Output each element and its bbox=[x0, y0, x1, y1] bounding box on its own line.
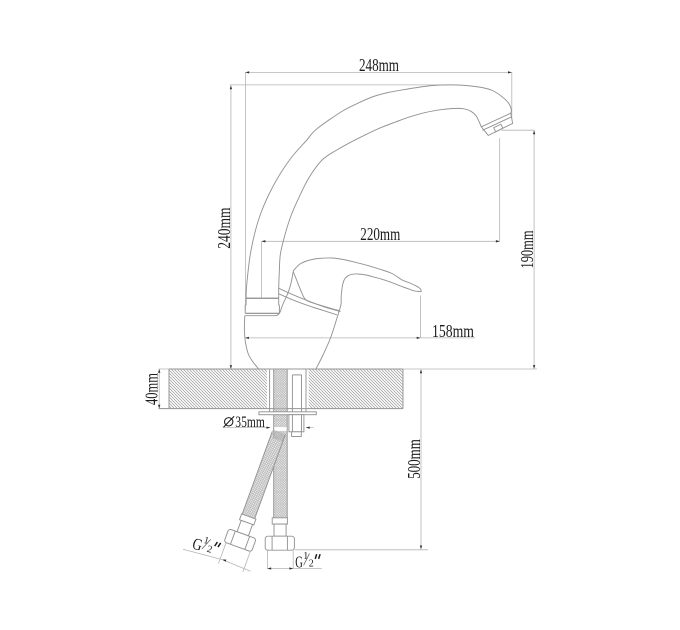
svg-text:190mm: 190mm bbox=[517, 231, 537, 269]
svg-text:1: 1 bbox=[303, 551, 308, 562]
svg-text:35mm: 35mm bbox=[235, 414, 265, 431]
svg-text:G: G bbox=[295, 552, 303, 571]
svg-text:158mm: 158mm bbox=[432, 321, 474, 341]
svg-text:40mm: 40mm bbox=[142, 373, 162, 405]
svg-text:220mm: 220mm bbox=[360, 224, 400, 244]
svg-text:2: 2 bbox=[309, 558, 314, 569]
svg-text:248mm: 248mm bbox=[359, 55, 399, 75]
svg-text:240mm: 240mm bbox=[214, 208, 234, 249]
svg-text:500mm: 500mm bbox=[404, 439, 424, 479]
